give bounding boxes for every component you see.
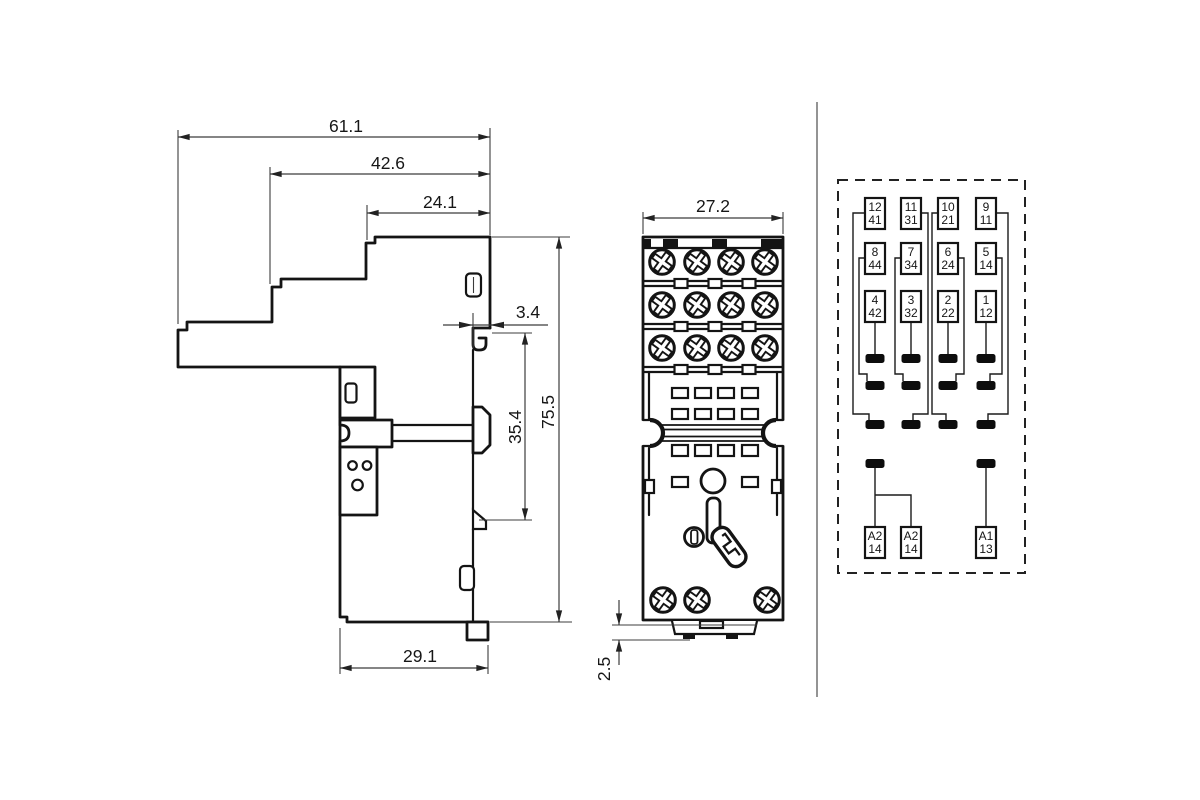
slotted-screw — [685, 528, 704, 547]
din-slider-clip — [340, 420, 392, 447]
upper-block-slot — [346, 384, 357, 403]
front-view: 27.2 2.5 — [594, 196, 785, 681]
side-view: 61.1 42.6 24.1 3.4 35.4 75.5 29.1 — [178, 116, 572, 674]
dim-total-height-label: 75.5 — [538, 395, 558, 429]
terminal-label: 1241 — [868, 200, 882, 227]
contact-pads — [866, 354, 996, 468]
dim-bottom-width-label: 29.1 — [403, 646, 437, 666]
terminal-row-2: 844 734 624 514 — [865, 243, 996, 274]
din-spring-tab — [473, 407, 490, 453]
side-body-outline — [178, 237, 490, 622]
din-top-claw — [473, 328, 490, 350]
block-hole — [348, 461, 357, 470]
front-top-tabs — [644, 239, 782, 247]
block-hole — [352, 480, 363, 491]
terminal-label: 1021 — [941, 200, 955, 227]
terminal-label: 1131 — [904, 200, 918, 227]
dim-foot-height-label: 2.5 — [594, 657, 614, 681]
dim-total-width-label: 61.1 — [329, 116, 363, 136]
coil-terminal-label: A214 — [904, 529, 919, 556]
center-left-slot — [672, 477, 688, 487]
coil-terminal-label: A113 — [979, 529, 994, 556]
center-hole — [701, 469, 725, 493]
side-foot — [467, 622, 488, 640]
pin-schematic: 1241 1131 1021 911 844 734 624 514 442 3… — [838, 180, 1025, 573]
dim-claw-gap-label: 3.4 — [516, 302, 541, 322]
center-right-slot — [742, 477, 758, 487]
front-foot — [672, 621, 757, 639]
dim-rail-height-label: 35.4 — [505, 410, 525, 444]
coil-terminal-label: A214 — [868, 529, 883, 556]
dim-front-width-label: 27.2 — [696, 196, 730, 216]
slider-rod — [392, 425, 473, 441]
coil-terminals: A214 A214 A113 — [865, 527, 996, 558]
relay-socket-drawing: 61.1 42.6 24.1 3.4 35.4 75.5 29.1 — [0, 0, 1200, 800]
dim-top-width-label: 24.1 — [423, 192, 457, 212]
dim-upper-width-label: 42.6 — [371, 153, 405, 173]
side-lower-slot — [460, 566, 474, 590]
block-hole — [363, 461, 372, 470]
technical-drawing-canvas: 61.1 42.6 24.1 3.4 35.4 75.5 29.1 — [0, 0, 1200, 800]
terminal-row-3: 442 332 222 112 — [865, 291, 996, 322]
terminal-row-1: 1241 1131 1021 911 — [865, 198, 996, 229]
